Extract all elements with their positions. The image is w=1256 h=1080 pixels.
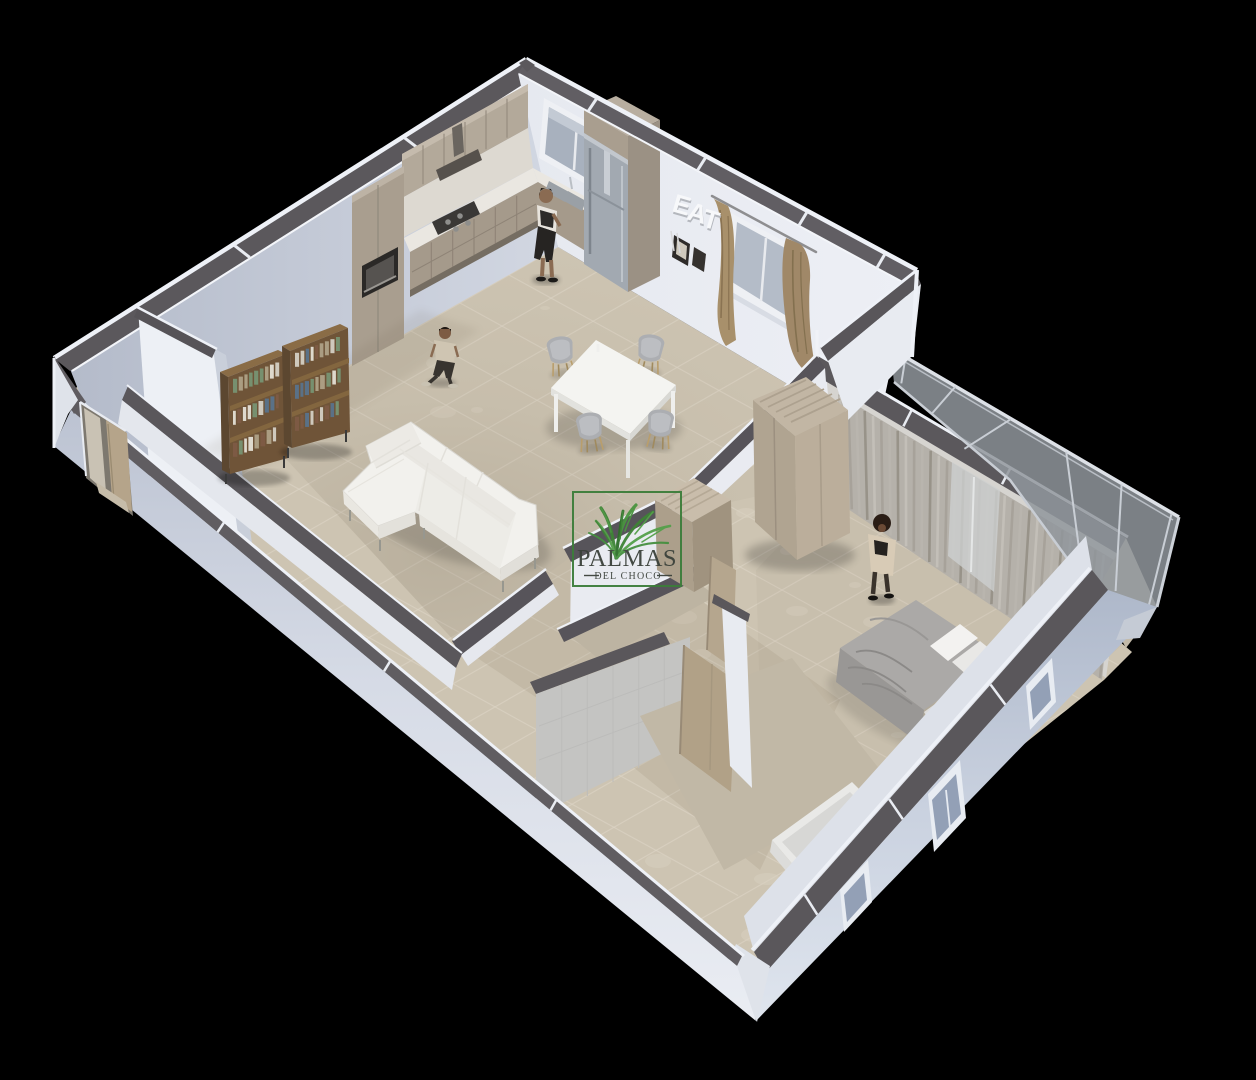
- svg-text:DEL CHOCO: DEL CHOCO: [594, 571, 661, 582]
- svg-text:PALMAS: PALMAS: [577, 545, 677, 572]
